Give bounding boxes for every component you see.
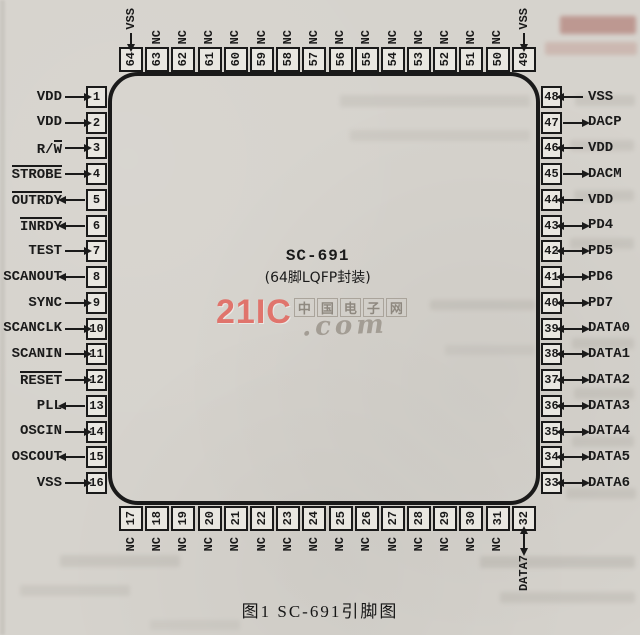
pin-2-label: VDD [37,115,62,130]
pin-5-label: OUTRDY [12,191,62,209]
pin-55-label: NC [360,30,373,44]
pin-37: 37DATA2 [541,367,640,393]
pin-27-number: 27 [386,511,400,525]
pin-5-number: 5 [93,193,100,207]
pin-2-number: 2 [93,116,100,130]
pin-7-label-text: TEST [28,243,62,259]
pin-64-label: VSS [125,8,138,30]
pin-16: VSS16 [0,470,107,496]
pin-27-box: 27 [381,506,405,531]
pin-62-box: 62 [171,47,195,72]
pin-63-number: 63 [150,52,164,66]
pin-8-number: 8 [93,270,100,284]
pin-43-label-text: PD4 [588,217,613,233]
pin-3: R/W3 [0,136,107,162]
pin-48-arrow-in [563,96,583,98]
pin-25-number: 25 [334,511,348,525]
pin-3-label-text: R/ [37,142,54,158]
pin-5-box: 5 [86,189,107,211]
pin-7: TEST7 [0,239,107,265]
pin-46-label-text: VDD [588,140,613,156]
pin-5-label-overlined: OUTRDY [12,191,62,209]
pin-20-label: NC [203,537,216,551]
pin-15-label-text: OSCOUT [12,449,62,465]
pin-42-arrow-bi [563,250,583,252]
pin-55-number: 55 [360,52,374,66]
pin-19-box: 19 [171,506,195,531]
pin-35: 35DATA4 [541,419,640,445]
pin-4-label: STROBE [12,165,62,183]
pin-56: NC56 [329,1,353,72]
pin-4-arrow-in [65,173,85,175]
pin-45-arrow-out [563,173,583,175]
pin-57-label: NC [308,30,321,44]
pin-1: VDD1 [0,84,107,110]
pin-47-number: 47 [544,116,558,130]
pin-49: VSS49 [512,1,536,72]
pin-52-label: NC [439,30,452,44]
pin-60: NC60 [224,1,248,72]
pin-47-box: 47 [541,112,562,134]
pin-4-number: 4 [93,167,100,181]
pin-30-label: NC [465,537,478,551]
pin-33: 33DATA6 [541,470,640,496]
pin-22-box: 22 [250,506,274,531]
pin-1-label-text: VDD [37,89,62,105]
pin-49-number: 49 [517,52,531,66]
pin-28-number: 28 [412,511,426,525]
pin-31-label: NC [491,537,504,551]
figure-caption: 图1 SC-691引脚图 [0,597,640,622]
pin-39-arrow-bi [563,328,583,330]
pin-53: NC53 [407,1,431,72]
pin-15-number: 15 [89,450,103,464]
pin-56-label: NC [334,30,347,44]
pin-18-number: 18 [150,511,164,525]
pin-54: NC54 [381,1,405,72]
pin-33-label: DATA6 [588,476,630,491]
pin-10: SCANCLK10 [0,316,107,342]
pin-59-label: NC [256,30,269,44]
pin-7-arrow-in [65,250,85,252]
pin-40-label: PD7 [588,296,613,311]
pin-61: NC61 [198,1,222,72]
pin-8-label-text: SCANOUT [3,269,62,285]
pin-55: NC55 [355,1,379,72]
pin-49-label: VSS [518,8,531,30]
pin-62: NC62 [171,1,195,72]
pin-59-number: 59 [255,52,269,66]
pin-50: NC50 [486,1,510,72]
pin-58-label: NC [282,30,295,44]
pin-24-number: 24 [307,511,321,525]
pin-61-box: 61 [198,47,222,72]
pin-49-arrow-in [523,33,525,45]
pin-61-label: NC [203,30,216,44]
watermark-domain: .com [302,310,389,343]
pin-48-label-text: VSS [588,89,613,105]
pin-22-label: NC [256,537,269,551]
pin-58-number: 58 [281,52,295,66]
pin-4-label-overlined: STROBE [12,165,62,183]
pin-62-number: 62 [176,52,190,66]
pin-31-number: 31 [491,511,505,525]
pin-50-label: NC [491,30,504,44]
pin-52-number: 52 [438,52,452,66]
pin-11-label-text: SCANIN [12,346,62,362]
pin-59: NC59 [250,1,274,72]
pin-29-box: 29 [433,506,457,531]
pin-37-label: DATA2 [588,373,630,388]
pin-54-box: 54 [381,47,405,72]
pin-32-arrow-bi [523,533,525,549]
pin-25-box: 25 [329,506,353,531]
pin-60-box: 60 [224,47,248,72]
pin-54-label: NC [387,30,400,44]
pin-29-label: NC [439,537,452,551]
pin-57-box: 57 [302,47,326,72]
pin-13: PLL13 [0,393,107,419]
pin-28-box: 28 [407,506,431,531]
pin-64-arrow-in [130,33,132,45]
pin-47: 47DACP [541,110,640,136]
pin-42: 42PD5 [541,239,640,265]
pin-10-label: SCANCLK [3,321,62,336]
pin-6-arrow-out [65,225,85,227]
pin-15-arrow-out [65,456,85,458]
pin-39: 39DATA0 [541,316,640,342]
pin-64: VSS64 [119,1,143,72]
pin-47-label: DACP [588,115,622,130]
pin-37-label-text: DATA2 [588,372,630,388]
pin-37-arrow-bi [563,379,583,381]
pin-35-label: DATA4 [588,424,630,439]
pin-34-label: DATA5 [588,450,630,465]
pin-9-arrow-in [65,302,85,304]
pin-2: VDD2 [0,110,107,136]
pin-57-number: 57 [307,52,321,66]
pin-10-arrow-in [65,328,85,330]
pin-36-label: DATA3 [588,399,630,414]
pin-40: 40PD7 [541,290,640,316]
pin-26-box: 26 [355,506,379,531]
pin-14-label-text: OSCIN [20,423,62,439]
pin-27-label: NC [387,537,400,551]
pin-25-label: NC [334,537,347,551]
pin-46-arrow-in [563,147,583,149]
pin-40-label-text: PD7 [588,295,613,311]
pin-12-label: RESET [20,371,62,389]
pin-17-box: 17 [119,506,143,531]
pin-15-box: 15 [86,446,107,468]
pin-32-label: DATA7 [518,555,531,591]
pin-35-arrow-bi [563,431,583,433]
pin-39-label-text: DATA0 [588,320,630,336]
pin-16-label-text: VSS [37,475,62,491]
pin-6: INRDY6 [0,213,107,239]
pin-14-arrow-in [65,431,85,433]
pin-20-box: 20 [198,506,222,531]
pin-45-number: 45 [544,167,558,181]
pin-3-arrow-in [65,147,85,149]
pin-12-arrow-in [65,379,85,381]
pin-20-number: 20 [203,511,217,525]
pin-45-box: 45 [541,163,562,185]
pin-62-label: NC [177,30,190,44]
pin-58-box: 58 [276,47,300,72]
pin-44-arrow-in [563,199,583,201]
pin-12-label-overlined: RESET [20,371,62,389]
pin-54-number: 54 [386,52,400,66]
pin-21-box: 21 [224,506,248,531]
pin-44-label-text: VDD [588,192,613,208]
pin-1-label: VDD [37,90,62,105]
pin-3-label: R/W [37,140,62,158]
chip-body: SC-691 (64脚LQFP封装) [108,72,540,505]
pin-5: OUTRDY5 [0,187,107,213]
pin-16-label: VSS [37,476,62,491]
pin-11-label: SCANIN [12,347,62,362]
watermark: 21IC 中国电子网 .com [216,297,407,328]
pin-52: NC52 [433,1,457,72]
pin-9-label-text: SYNC [28,295,62,311]
pin-53-number: 53 [412,52,426,66]
pin-9: SYNC9 [0,290,107,316]
pin-47-label-text: DACP [588,114,622,130]
pin-63-box: 63 [145,47,169,72]
pin-36-label-text: DATA3 [588,398,630,414]
pin-56-box: 56 [329,47,353,72]
pin-2-label-text: VDD [37,114,62,130]
pin-48: 48VSS [541,84,640,110]
pin-63: NC63 [145,1,169,72]
pin-40-arrow-bi [563,302,583,304]
pin-43-label: PD4 [588,218,613,233]
pin-13-number: 13 [89,399,103,413]
pin-44-label: VDD [588,193,613,208]
pin-33-label-text: DATA6 [588,475,630,491]
pin-7-number: 7 [93,244,100,258]
pin-32-number: 32 [517,511,531,525]
pin-38-label-text: DATA1 [588,346,630,362]
pin-6-box: 6 [86,215,107,237]
pin-8-arrow-out [65,276,85,278]
pin-45-label: DACM [588,167,622,182]
pin-39-label: DATA0 [588,321,630,336]
pin-45: 45DACM [541,161,640,187]
pin-17-label: NC [125,537,138,551]
pin-41: 41PD6 [541,264,640,290]
pin-13-box: 13 [86,395,107,417]
pin-24-label: NC [308,537,321,551]
chip-package: (64脚LQFP封装) [265,267,371,287]
pin-9-label: SYNC [28,296,62,311]
pin-34: 34DATA5 [541,445,640,471]
pin-10-label-text: SCANCLK [3,320,62,336]
pin-50-box: 50 [486,47,510,72]
pin-14: OSCIN14 [0,419,107,445]
pin-4: STROBE4 [0,161,107,187]
pin-23-box: 23 [276,506,300,531]
pin-36-arrow-bi [563,405,583,407]
pin-19-label: NC [177,537,190,551]
pin-18-label: NC [151,537,164,551]
pin-24-box: 24 [302,506,326,531]
pin-34-arrow-bi [563,456,583,458]
pin-23-label: NC [282,537,295,551]
pin-19-number: 19 [176,511,190,525]
pin-51-label: NC [465,30,478,44]
pin-56-number: 56 [334,52,348,66]
pin-58: NC58 [276,1,300,72]
pin-42-label: PD5 [588,244,613,259]
pin-5-arrow-out [65,199,85,201]
pin-41-arrow-bi [563,276,583,278]
pin-45-label-text: DACM [588,166,622,182]
pin-16-arrow-in [65,482,85,484]
pin-column-right: 48VSS47DACP46VDD45DACM44VDD43PD442PD541P… [541,84,640,496]
pin-8-box: 8 [86,266,107,288]
pin-8-label: SCANOUT [3,270,62,285]
pin-34-label-text: DATA5 [588,449,630,465]
pin-53-label: NC [413,30,426,44]
pin-8: SCANOUT8 [0,264,107,290]
pin-57: NC57 [302,1,326,72]
pin-6-number: 6 [93,219,100,233]
pin-11: SCANIN11 [0,342,107,368]
pin-46-label: VDD [588,141,613,156]
pin-46: 46VDD [541,136,640,162]
pin-38: 38DATA1 [541,342,640,368]
pin-15: OSCOUT15 [0,445,107,471]
pin-31-box: 31 [486,506,510,531]
pin-43: 43PD4 [541,213,640,239]
pin-14-label: OSCIN [20,424,62,439]
pin-47-arrow-out [563,122,583,124]
pin-30-number: 30 [464,511,478,525]
pin-22-number: 22 [255,511,269,525]
pin-43-arrow-bi [563,225,583,227]
pin-50-number: 50 [491,52,505,66]
pin-28-label: NC [413,537,426,551]
pin-6-label: INRDY [20,217,62,235]
watermark-logo: 21IC [216,297,292,328]
pin-3-number: 3 [93,141,100,155]
pin-26-label: NC [360,537,373,551]
pin-64-number: 64 [124,52,138,66]
pin-41-label: PD6 [588,270,613,285]
pin-51: NC51 [459,1,483,72]
pin-18-box: 18 [145,506,169,531]
pin-35-label-text: DATA4 [588,423,630,439]
pin-29-number: 29 [438,511,452,525]
pin-12: RESET12 [0,367,107,393]
pin-61-number: 61 [203,52,217,66]
pin-6-label-overlined: INRDY [20,217,62,235]
pin-9-number: 9 [93,296,100,310]
pin-17-number: 17 [124,511,138,525]
pin-13-arrow-out [65,405,85,407]
pin-51-number: 51 [464,52,478,66]
pin-38-arrow-bi [563,353,583,355]
pin-42-label-text: PD5 [588,243,613,259]
pin-2-arrow-in [65,122,85,124]
watermark-cn-char: 网 [386,298,407,317]
pin-23-number: 23 [281,511,295,525]
pin-48-label: VSS [588,90,613,105]
pin-3-label-overlined: W [54,140,62,158]
pin-60-number: 60 [229,52,243,66]
pin-63-label: NC [151,30,164,44]
pin-30-box: 30 [459,506,483,531]
pin-53-box: 53 [407,47,431,72]
pin-60-label: NC [229,30,242,44]
pin-38-label: DATA1 [588,347,630,362]
pin-36: 36DATA3 [541,393,640,419]
pin-1-number: 1 [93,90,100,104]
pin-26-number: 26 [360,511,374,525]
pin-row-top: VSS64NC63NC62NC61NC60NC59NC58NC57NC56NC5… [119,1,536,72]
pin-21-label: NC [229,537,242,551]
pin-59-box: 59 [250,47,274,72]
pin-1-arrow-in [65,96,85,98]
chip-name: SC-691 [265,247,371,265]
pin-33-arrow-bi [563,482,583,484]
pin-55-box: 55 [355,47,379,72]
pin-41-label-text: PD6 [588,269,613,285]
pin-7-label: TEST [28,244,62,259]
pin-15-label: OSCOUT [12,450,62,465]
pin-52-box: 52 [433,47,457,72]
pin-11-arrow-in [65,353,85,355]
pin-21-number: 21 [229,511,243,525]
pin-column-left: VDD1VDD2R/W3STROBE4OUTRDY5INRDY6TEST7SCA… [0,84,107,496]
chip-title-block: SC-691 (64脚LQFP封装) [265,247,371,287]
pin-51-box: 51 [459,47,483,72]
scanned-page: SC-691 (64脚LQFP封装) VDD1VDD2R/W3STROBE4OU… [0,0,640,635]
pin-44: 44VDD [541,187,640,213]
